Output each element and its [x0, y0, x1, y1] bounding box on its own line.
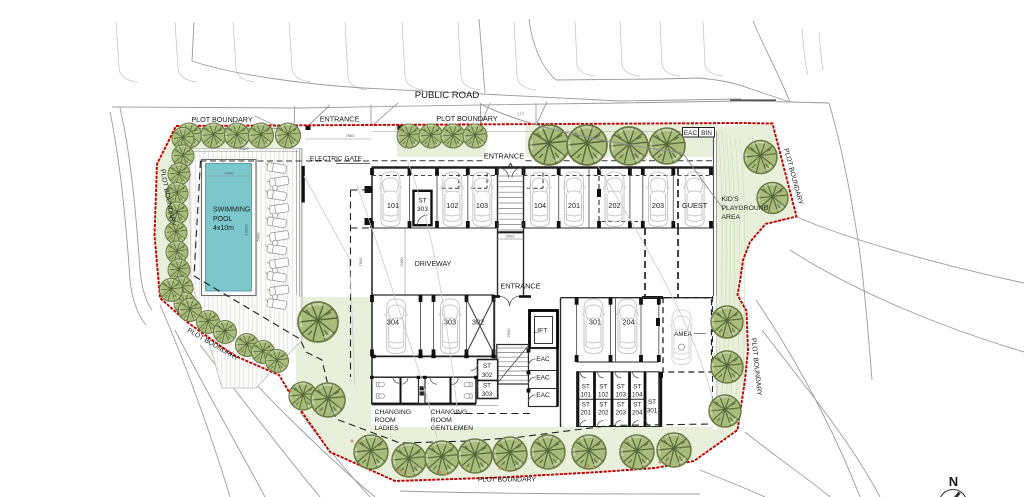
svg-text:PLOT BOUNDARY: PLOT BOUNDARY — [191, 115, 252, 124]
svg-text:GENTLEMEN: GENTLEMEN — [431, 425, 473, 432]
svg-text:103: 103 — [616, 392, 627, 399]
svg-text:104: 104 — [534, 201, 546, 210]
svg-text:ROOM: ROOM — [431, 417, 452, 424]
svg-text:ST: ST — [633, 384, 641, 391]
svg-text:102: 102 — [598, 392, 609, 399]
svg-text:202: 202 — [608, 201, 620, 210]
svg-text:CHANGING: CHANGING — [431, 409, 468, 416]
svg-text:ST: ST — [582, 384, 590, 391]
svg-text:PLOT BOUNDARY: PLOT BOUNDARY — [436, 114, 497, 123]
svg-text:ST: ST — [617, 402, 625, 409]
svg-text:2500: 2500 — [506, 328, 511, 338]
svg-text:5000: 5000 — [256, 232, 261, 242]
svg-text:GUEST: GUEST — [682, 201, 708, 210]
svg-text:ENTRANCE: ENTRANCE — [484, 152, 524, 161]
svg-text:203: 203 — [616, 410, 627, 417]
svg-text:101: 101 — [581, 392, 592, 399]
svg-text:EAC: EAC — [536, 356, 550, 363]
svg-text:203: 203 — [652, 201, 664, 210]
svg-text:ENTRANCE: ENTRANCE — [500, 282, 540, 291]
svg-text:104: 104 — [632, 392, 643, 399]
svg-text:ST: ST — [483, 363, 491, 370]
svg-text:10000: 10000 — [244, 224, 249, 236]
svg-text:ENTRANCE: ENTRANCE — [320, 115, 360, 124]
svg-text:2000: 2000 — [506, 234, 516, 239]
svg-text:LADIES: LADIES — [375, 425, 400, 432]
svg-text:EAC: EAC — [536, 375, 550, 382]
svg-text:304: 304 — [387, 318, 399, 327]
svg-text:LIFT: LIFT — [534, 328, 548, 335]
svg-text:302: 302 — [472, 318, 484, 327]
svg-text:7500: 7500 — [346, 133, 356, 138]
svg-text:204: 204 — [632, 410, 643, 417]
svg-text:ST: ST — [599, 384, 607, 391]
svg-text:ST: ST — [599, 402, 607, 409]
svg-text:KID'S: KID'S — [722, 196, 740, 203]
svg-text:103: 103 — [476, 201, 488, 210]
svg-text:7500: 7500 — [358, 257, 363, 267]
svg-text:201: 201 — [568, 201, 580, 210]
svg-text:ROOM: ROOM — [375, 417, 396, 424]
svg-text:PLOT BOUNDARY: PLOT BOUNDARY — [478, 477, 536, 484]
svg-text:3400: 3400 — [399, 257, 404, 267]
svg-text:201: 201 — [581, 410, 592, 417]
svg-text:303: 303 — [482, 391, 493, 398]
svg-text:101: 101 — [387, 201, 399, 210]
svg-text:301: 301 — [589, 318, 601, 327]
svg-text:PLAYGROUND: PLAYGROUND — [722, 205, 769, 212]
svg-text:302: 302 — [482, 372, 493, 379]
svg-text:4000: 4000 — [225, 170, 235, 175]
svg-text:204: 204 — [622, 318, 634, 327]
svg-text:N: N — [949, 474, 958, 489]
svg-text:ST: ST — [582, 402, 590, 409]
svg-text:202: 202 — [598, 410, 609, 417]
svg-text:EAC: EAC — [536, 392, 550, 399]
svg-text:CHANGING: CHANGING — [375, 409, 412, 416]
svg-text:POOL: POOL — [213, 216, 233, 223]
svg-text:301: 301 — [647, 407, 658, 414]
svg-text:ST: ST — [483, 383, 491, 390]
svg-text:ST: ST — [617, 384, 625, 391]
svg-text:102: 102 — [446, 201, 458, 210]
svg-text:AREA: AREA — [722, 214, 741, 221]
svg-text:ST: ST — [633, 402, 641, 409]
svg-text:BIN: BIN — [701, 130, 712, 137]
svg-text:DRIVEWAY: DRIVEWAY — [415, 261, 452, 268]
svg-text:SWIMMING: SWIMMING — [213, 207, 250, 214]
svg-text:4x10m: 4x10m — [213, 225, 234, 232]
svg-text:ST: ST — [418, 198, 426, 205]
svg-text:EAC: EAC — [684, 130, 698, 137]
svg-text:ST: ST — [648, 399, 656, 406]
svg-text:PUBLIC ROAD: PUBLIC ROAD — [415, 90, 480, 101]
